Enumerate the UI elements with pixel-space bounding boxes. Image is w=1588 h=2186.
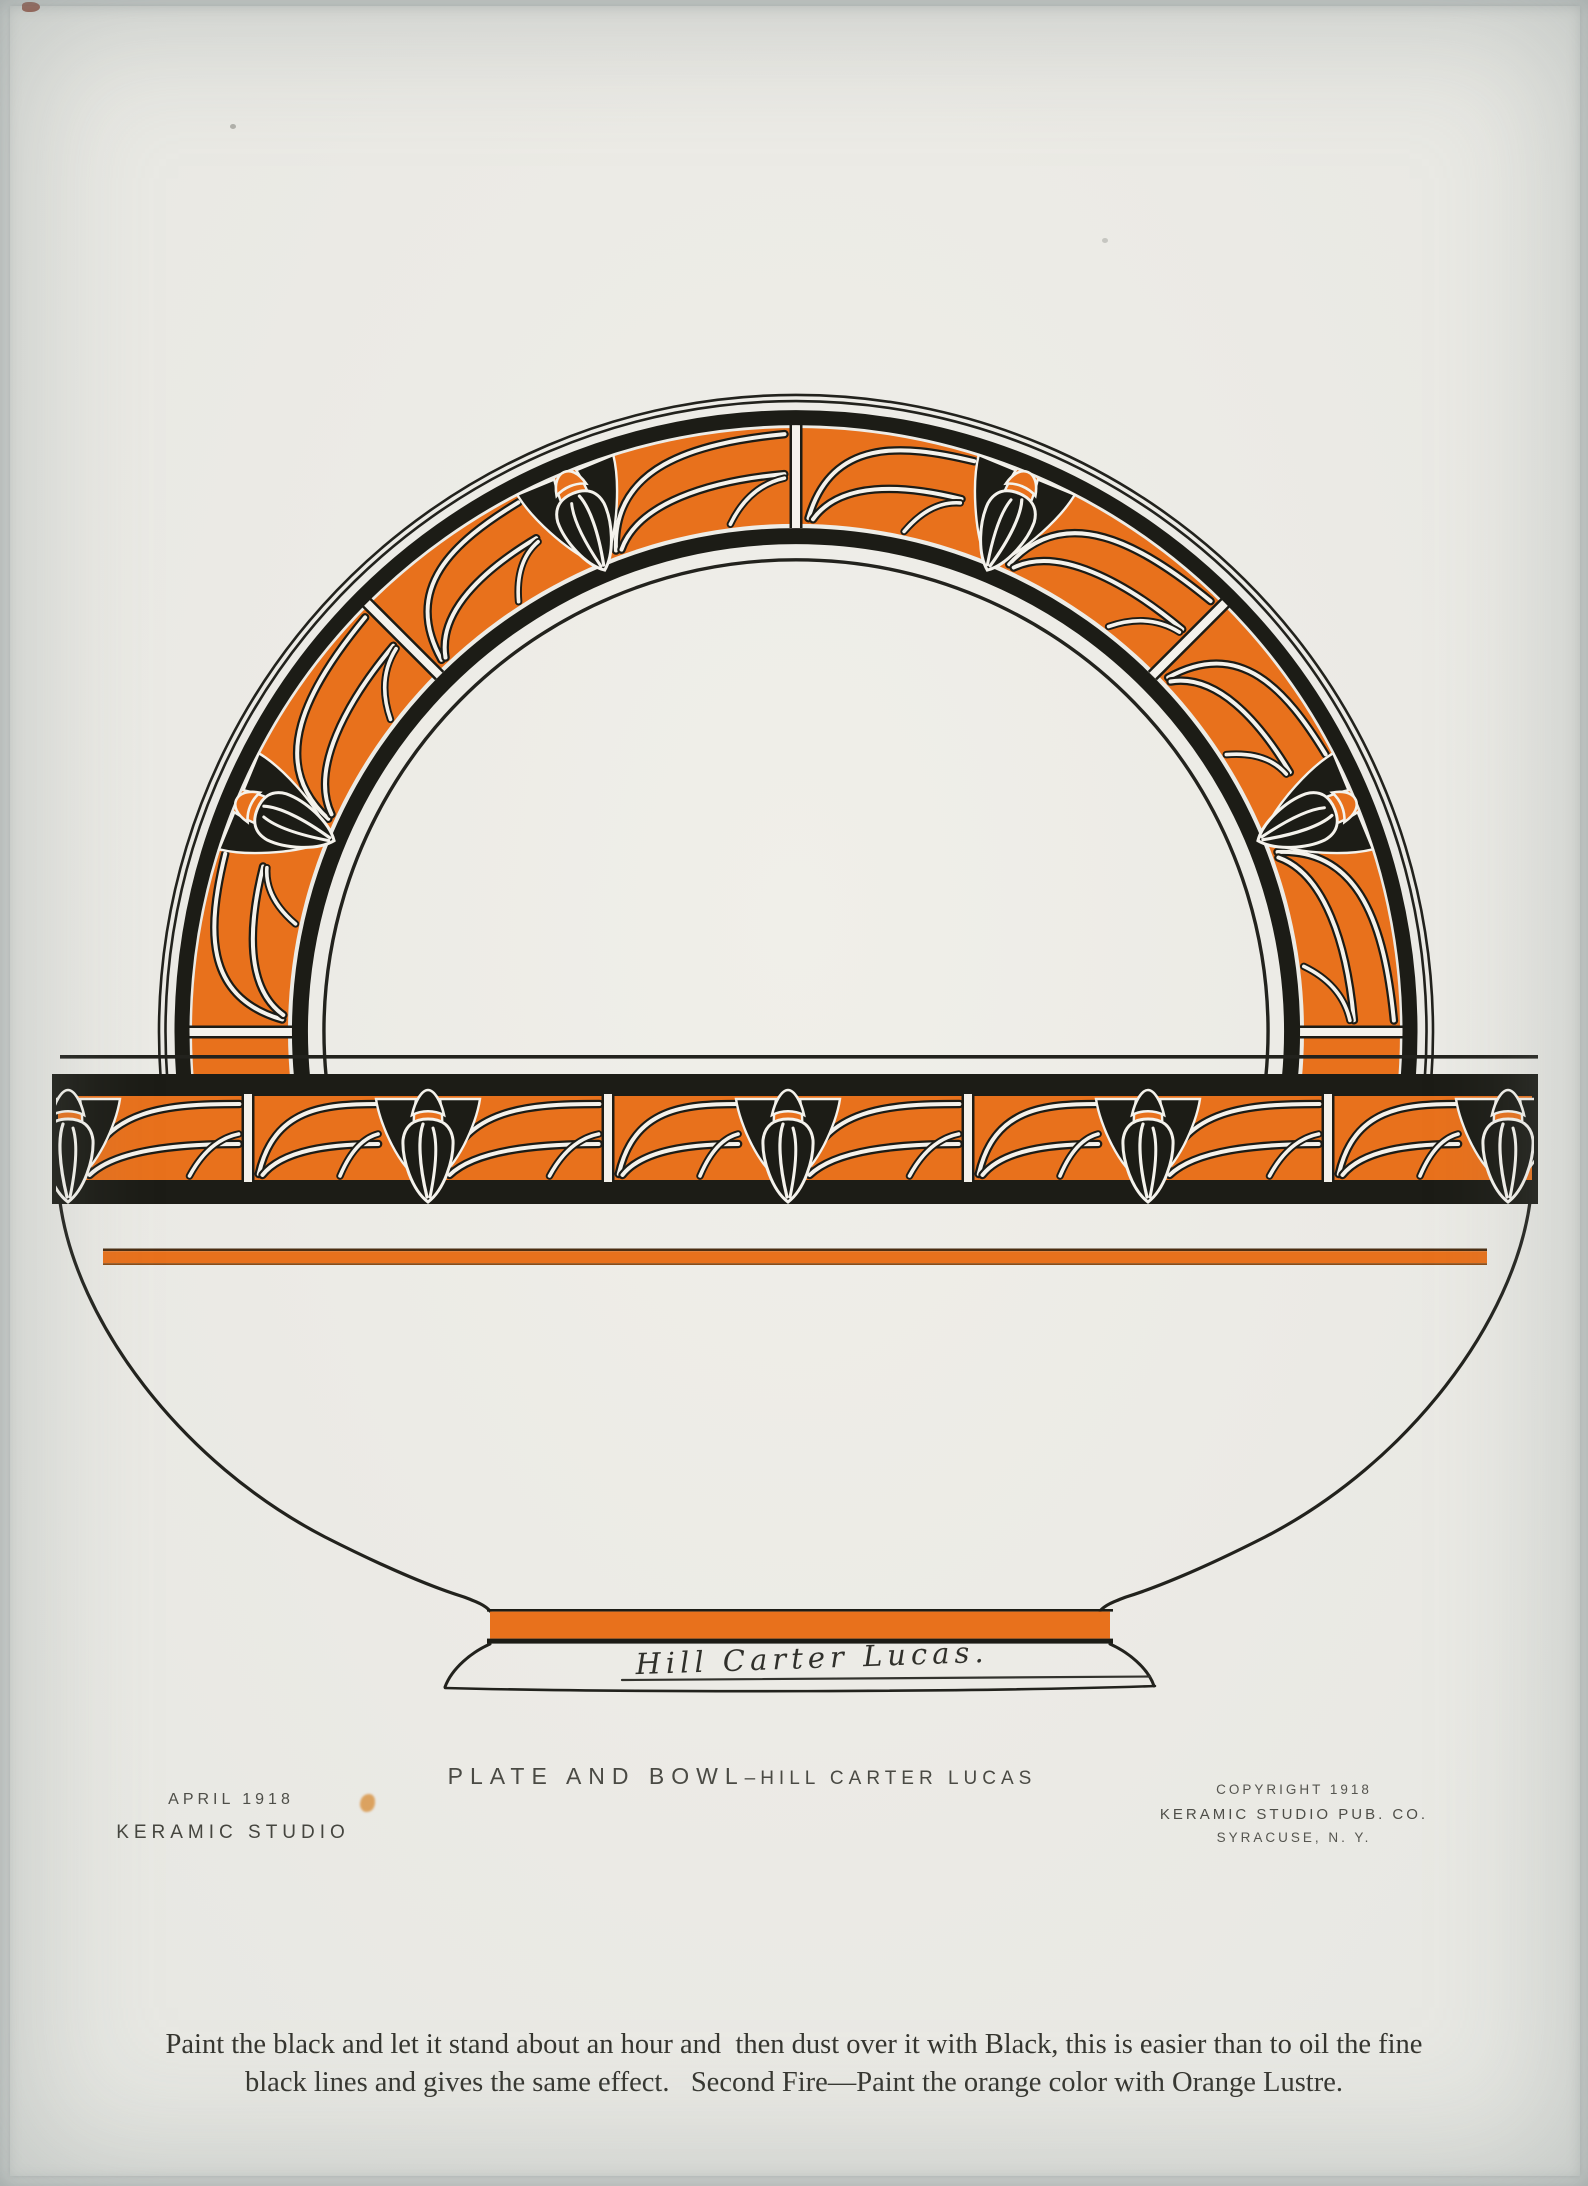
issue-date: APRIL 1918 <box>168 1791 294 1809</box>
publication-name: KERAMIC STUDIO <box>116 1822 350 1844</box>
caption-separator: – <box>745 1768 761 1789</box>
paper-speck <box>1102 238 1108 243</box>
copyright-line2: KERAMIC STUDIO PUB. CO. <box>1160 1806 1428 1823</box>
copyright-line3: SYRACUSE, N. Y. <box>1217 1830 1372 1845</box>
plate-rim-ring <box>159 395 1433 1099</box>
paper-speck <box>230 124 236 129</box>
bowl-body <box>60 1202 1530 1611</box>
caption-title: PLATE AND BOWL <box>448 1763 745 1789</box>
bowl-rim-band <box>16 1055 1560 1204</box>
copyright-line1: COPYRIGHT 1918 <box>1216 1782 1372 1797</box>
caption-designer: HILL CARTER LUCAS <box>760 1768 1036 1789</box>
plate-caption: PLATE AND BOWL–HILL CARTER LUCAS <box>448 1763 1037 1790</box>
firing-instructions-line2: black lines and gives the same effect. S… <box>245 2067 1343 2099</box>
plate-and-bowl-illustration <box>0 0 1588 2186</box>
paper-speck <box>22 2 40 12</box>
firing-instructions-line1: Paint the black and let it stand about a… <box>166 2029 1423 2061</box>
scanned-plate-page: PLATE AND BOWL–HILL CARTER LUCAS APRIL 1… <box>0 0 1588 2186</box>
